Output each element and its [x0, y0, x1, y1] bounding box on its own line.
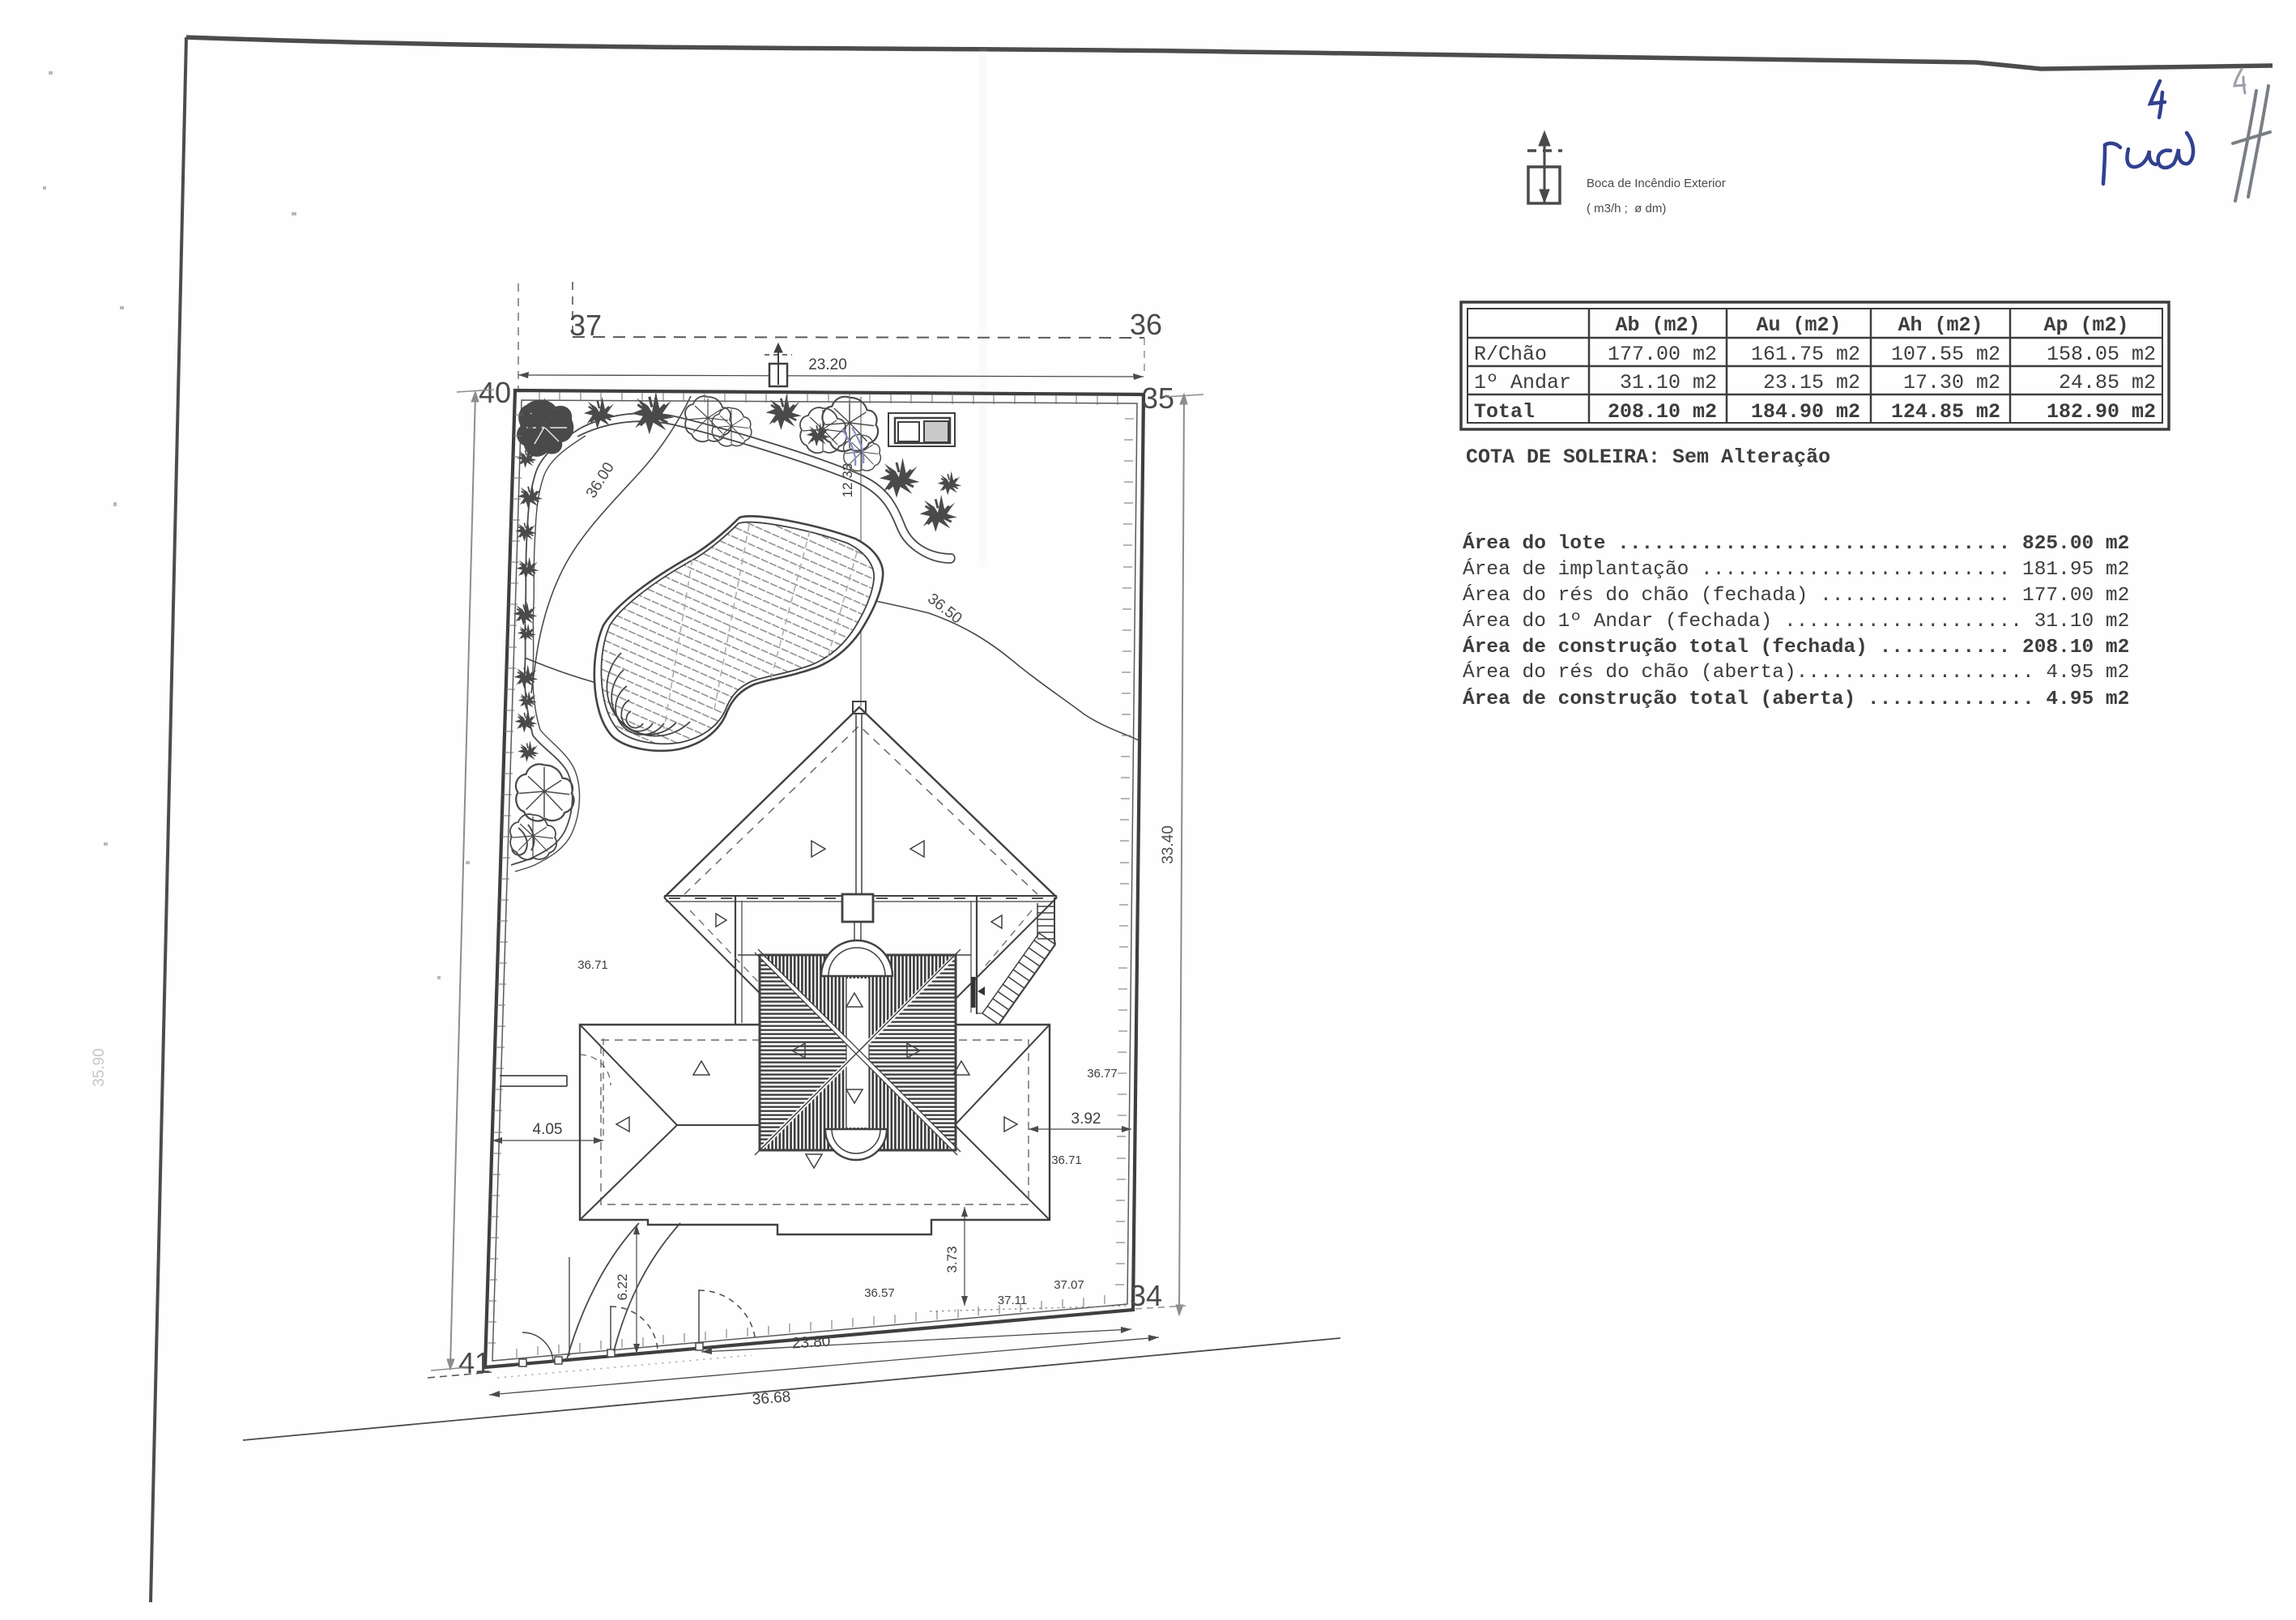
svg-text:158.05 m2: 158.05 m2: [2047, 343, 2156, 366]
svg-text:( m3/h ; ø dm): ( m3/h ; ø dm): [1587, 202, 1666, 215]
svg-text:36.50: 36.50: [924, 590, 965, 628]
svg-text:Au (m2): Au (m2): [1756, 313, 1841, 337]
svg-text:23.80: 23.80: [791, 1332, 831, 1352]
svg-text:208.10 m2: 208.10 m2: [1608, 400, 1717, 424]
svg-text:36.77: 36.77: [1087, 1067, 1118, 1081]
svg-text:Ab (m2): Ab (m2): [1615, 313, 1700, 337]
svg-text:Área do rés do chão (aberta)..: Área do rés do chão (aberta)............…: [1463, 661, 2129, 684]
svg-text:COTA DE SOLEIRA: Sem Alteração: COTA DE SOLEIRA: Sem Alteração: [1466, 446, 1830, 469]
svg-text:17.30 m2: 17.30 m2: [1903, 371, 2000, 394]
svg-text:37: 37: [569, 309, 602, 342]
svg-text:23.15 m2: 23.15 m2: [1763, 371, 1860, 394]
svg-text:40: 40: [479, 376, 511, 409]
svg-text:41: 41: [458, 1346, 491, 1379]
svg-text:31.10 m2: 31.10 m2: [1620, 371, 1717, 394]
svg-text:37.07: 37.07: [1054, 1278, 1084, 1292]
svg-text:24.85 m2: 24.85 m2: [2059, 371, 2156, 394]
svg-text:184.90 m2: 184.90 m2: [1751, 400, 1860, 424]
svg-text:35.90: 35.90: [91, 1048, 108, 1087]
svg-text:3.92: 3.92: [1071, 1111, 1101, 1128]
svg-text:R/Chão: R/Chão: [1474, 343, 1547, 366]
svg-text:182.90 m2: 182.90 m2: [2047, 400, 2156, 424]
svg-text:177.00 m2: 177.00 m2: [1608, 343, 1717, 366]
svg-text:36.00: 36.00: [583, 459, 618, 501]
svg-text:Ap (m2): Ap (m2): [2043, 313, 2128, 337]
svg-text:1º Andar: 1º Andar: [1474, 371, 1571, 394]
svg-text:6.22: 6.22: [615, 1273, 630, 1300]
svg-text:Área de construção total (aber: Área de construção total (aberta) ......…: [1463, 688, 2129, 710]
svg-text:4.05: 4.05: [533, 1121, 563, 1138]
svg-text:Total: Total: [1474, 400, 1535, 424]
svg-text:Área do rés do chão (fechada): Área do rés do chão (fechada) ..........…: [1463, 584, 2129, 607]
svg-text:33.40: 33.40: [1160, 825, 1177, 864]
svg-text:37.11: 37.11: [998, 1294, 1027, 1307]
svg-text:Boca de Incêndio Exterior: Boca de Incêndio Exterior: [1587, 177, 1726, 190]
svg-text:36: 36: [1130, 308, 1162, 341]
svg-text:107.55 m2: 107.55 m2: [1891, 343, 2000, 366]
svg-text:Área de implantação ..........: Área de implantação ....................…: [1463, 558, 2129, 581]
svg-text:Área de construção total (fech: Área de construção total (fechada) .....…: [1463, 636, 2129, 659]
svg-text:161.75 m2: 161.75 m2: [1751, 343, 1860, 366]
svg-text:35: 35: [1142, 382, 1174, 415]
svg-text:124.85 m2: 124.85 m2: [1891, 400, 2000, 424]
svg-text:Área do lote .................: Área do lote ...........................…: [1463, 532, 2129, 555]
svg-text:36.71: 36.71: [1051, 1153, 1082, 1167]
svg-text:36.71: 36.71: [577, 958, 608, 972]
svg-text:36.57: 36.57: [864, 1286, 895, 1300]
svg-text:3.73: 3.73: [944, 1246, 960, 1273]
svg-text:Ah (m2): Ah (m2): [1898, 313, 1983, 337]
svg-text:34: 34: [1130, 1279, 1162, 1312]
svg-text:Área do 1º Andar (fechada) ...: Área do 1º Andar (fechada) .............…: [1463, 610, 2129, 633]
svg-text:23.20: 23.20: [808, 356, 847, 373]
